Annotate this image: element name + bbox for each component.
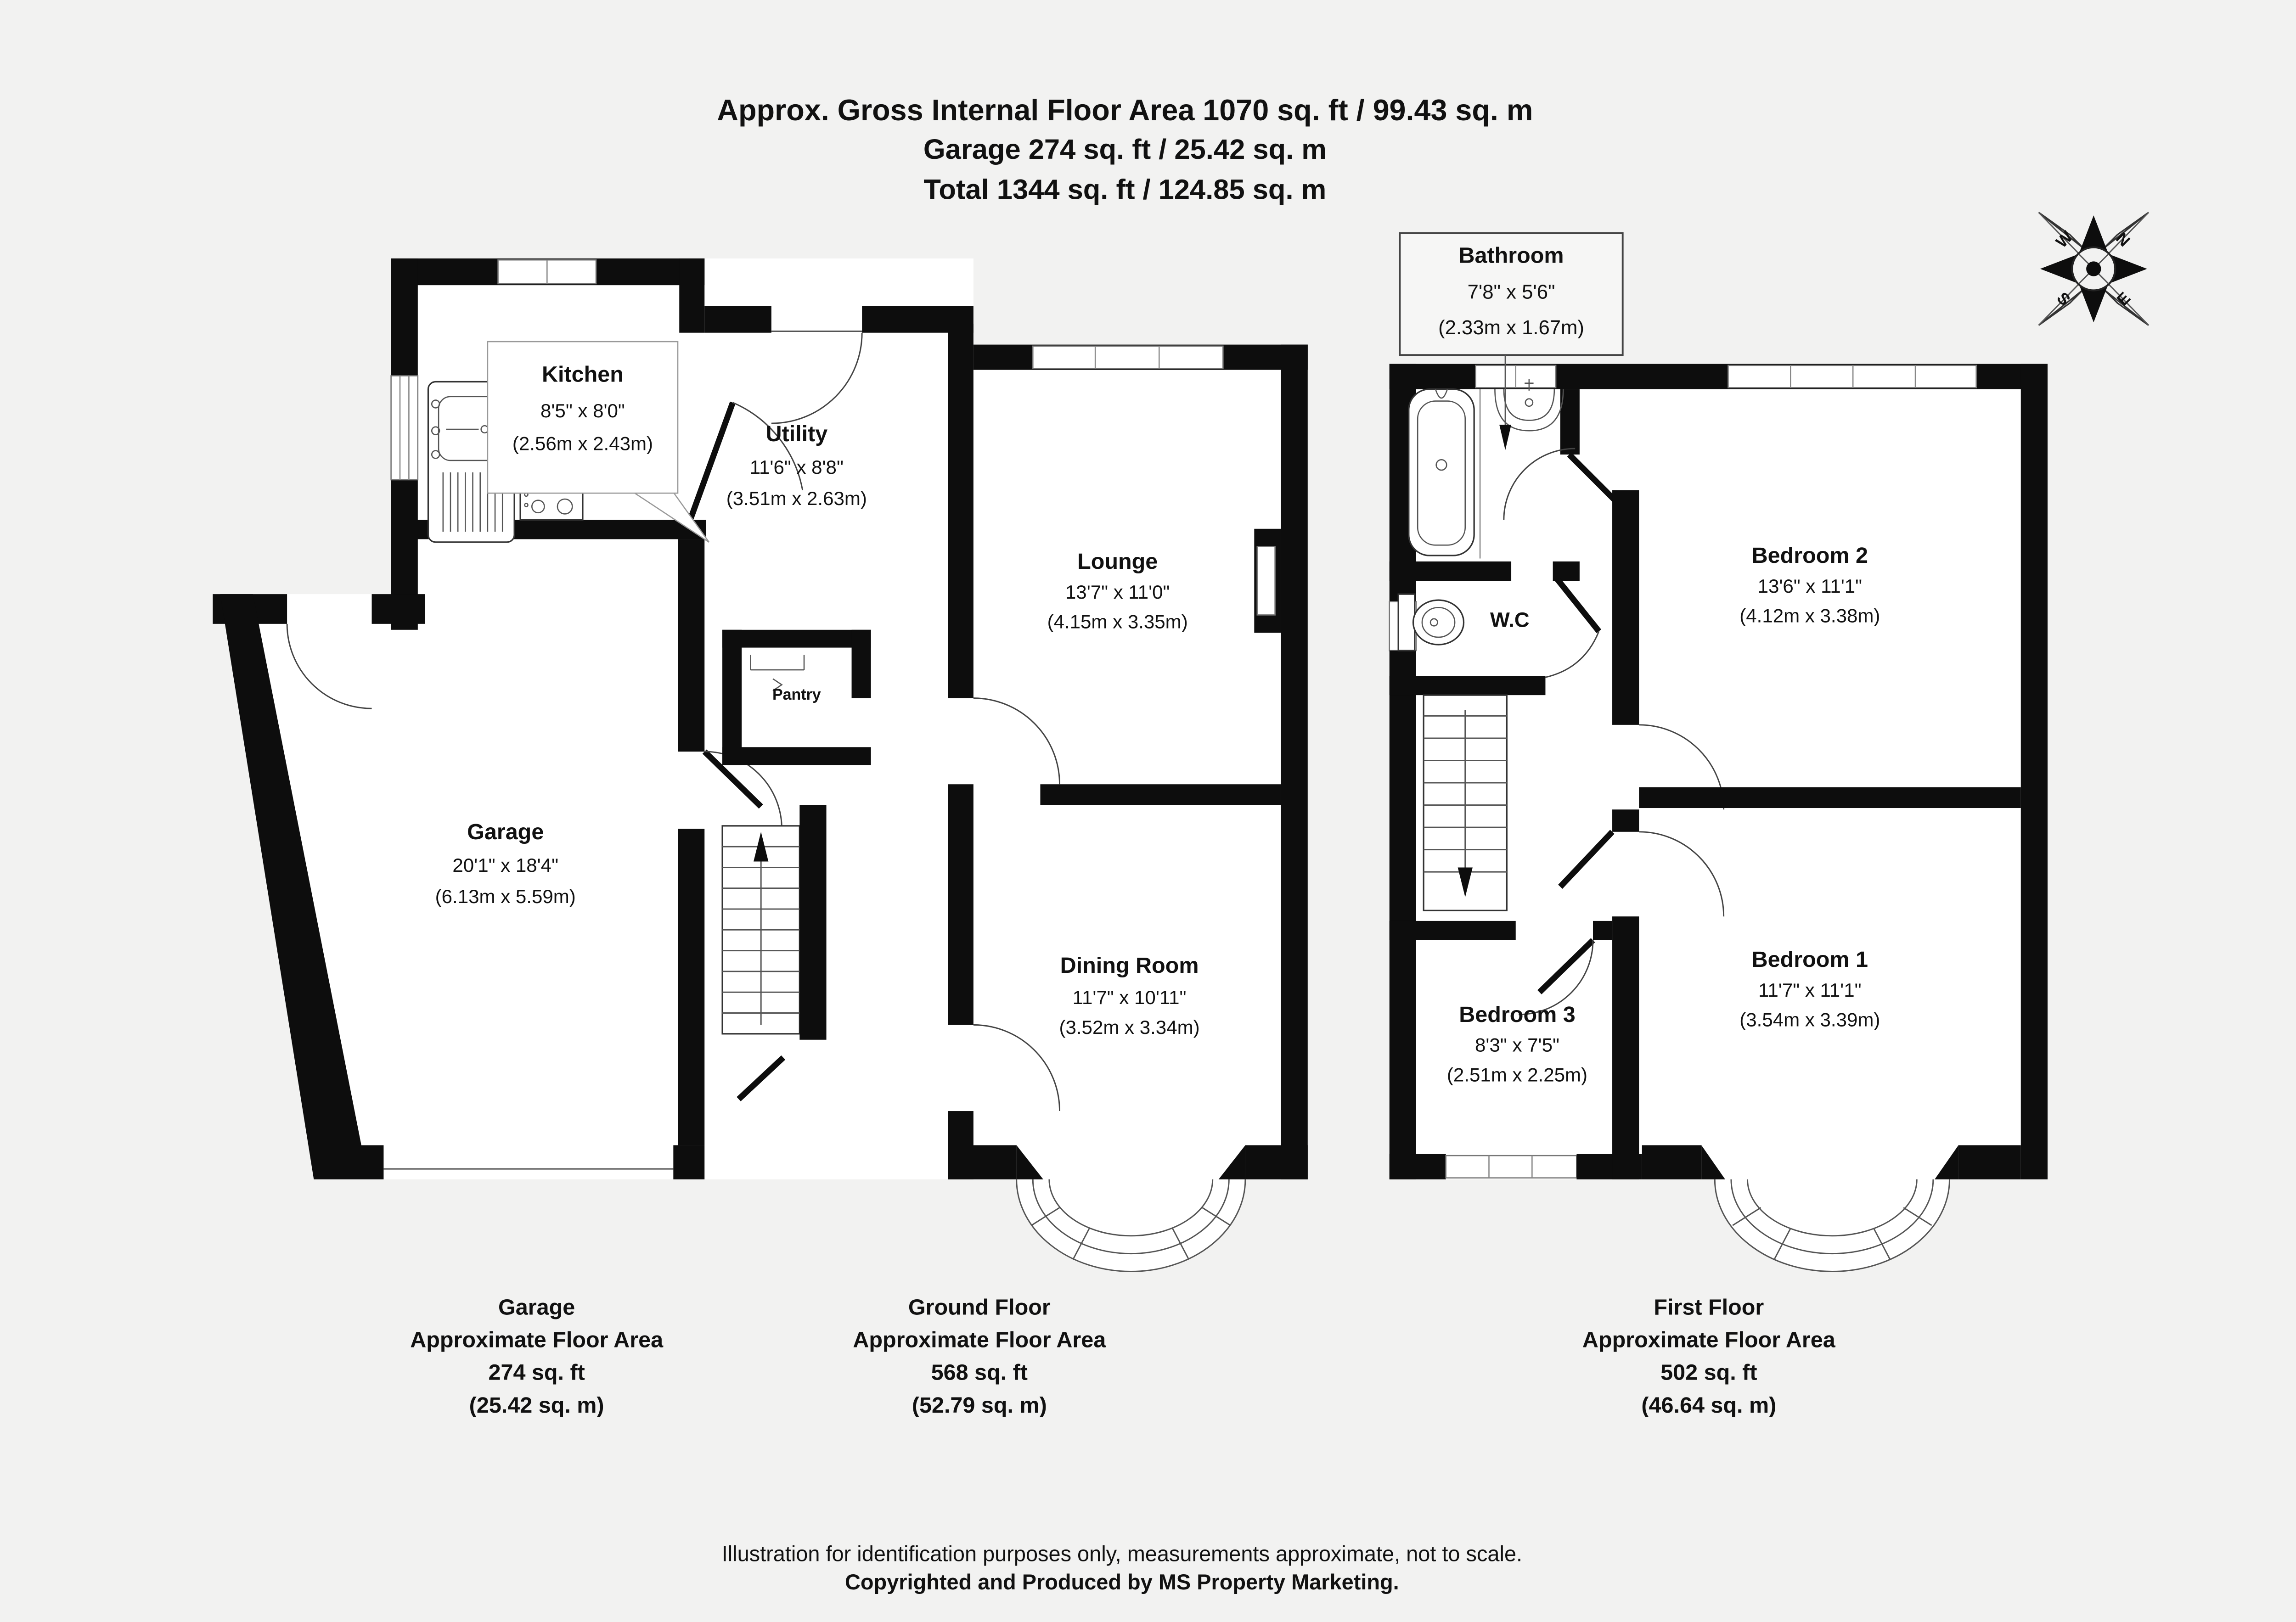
- footer-first-floor: First Floor Approximate Floor Area 502 s…: [1582, 1295, 1836, 1418]
- footer-first-line4: (46.64 sq. m): [1641, 1393, 1776, 1418]
- header-line3: Total 1344 sq. ft / 124.85 sq. m: [923, 174, 1326, 206]
- utility-name: Utility: [765, 421, 827, 446]
- kitchen-imperial: 8'5" x 8'0": [540, 400, 625, 421]
- footer-ground-line2: Approximate Floor Area: [853, 1327, 1106, 1352]
- bathroom-imperial: 7'8" x 5'6": [1468, 281, 1555, 303]
- dining-metric: (3.52m x 3.34m): [1059, 1016, 1199, 1038]
- bedroom1-label: Bedroom 1 11'7" x 11'1" (3.54m x 3.39m): [1739, 947, 1880, 1030]
- lounge-left-wall-upper: [948, 324, 974, 698]
- bedroom3-top-wall-left: [1390, 921, 1516, 940]
- chimney-recess: [1257, 547, 1275, 615]
- bedroom1-bottom-wall-left: [1642, 1145, 1701, 1179]
- dining-bay-floor: [1017, 1179, 1245, 1272]
- disclaimer-line1: Illustration for identification purposes…: [722, 1542, 1522, 1566]
- hall-left-wall-lower: [678, 829, 704, 1145]
- footer-garage-line4: (25.42 sq. m): [469, 1393, 604, 1418]
- bathroom-wc-wall: [1390, 561, 1511, 581]
- centre-wall-lower: [1612, 916, 1639, 1179]
- bedroom3-imperial: 8'3" x 7'5": [1475, 1034, 1559, 1056]
- garage-top-wall-right: [372, 594, 425, 624]
- utility-metric: (3.51m x 2.63m): [726, 488, 867, 509]
- lounge-name: Lounge: [1077, 549, 1158, 574]
- footer-ground-title: Ground Floor: [908, 1295, 1051, 1319]
- footer-first-line2: Approximate Floor Area: [1582, 1327, 1836, 1352]
- hall-left-wall-upper: [678, 539, 704, 752]
- header-line1: Approx. Gross Internal Floor Area 1070 s…: [717, 93, 1533, 127]
- right-exterior-wall: [1281, 345, 1308, 1179]
- bedroom1-metric: (3.54m x 3.39m): [1739, 1009, 1880, 1031]
- ground-stairs: [722, 826, 799, 1034]
- first-floor-stairs: [1424, 695, 1507, 910]
- lounge-left-wall-lower: [948, 784, 974, 805]
- ff-left-wall-lower: [1390, 651, 1416, 1179]
- bedroom2-imperial: 13'6" x 11'1": [1758, 575, 1862, 597]
- kitchen-metric: (2.56m x 2.43m): [512, 432, 653, 454]
- disclaimer: Illustration for identification purposes…: [722, 1542, 1522, 1594]
- porch-step-wall: [679, 258, 704, 333]
- kitchen-name: Kitchen: [542, 362, 624, 387]
- footer-first-line3: 502 sq. ft: [1660, 1360, 1757, 1385]
- bathtub: [1409, 389, 1474, 556]
- lounge-window: [1033, 346, 1223, 369]
- dining-name: Dining Room: [1060, 953, 1199, 978]
- header-line2: Garage 274 sq. ft / 25.42 sq. m: [923, 134, 1327, 165]
- garage-bottom-pillar: [673, 1145, 704, 1179]
- bedroom3-metric: (2.51m x 2.25m): [1447, 1064, 1587, 1085]
- compass-center-dot: [2086, 261, 2101, 276]
- compass-icon: N W S E: [2039, 213, 2149, 326]
- centre-wall-upper: [1612, 490, 1639, 725]
- wc-bottom-wall: [1390, 676, 1546, 695]
- dining-bottom-wall-left: [948, 1145, 1017, 1179]
- floorplan-drawing: Approx. Gross Internal Floor Area 1070 s…: [0, 0, 2296, 1622]
- porch-left-wall: [704, 306, 771, 332]
- wc-name: W.C: [1490, 608, 1530, 631]
- floorplan-page: Approx. Gross Internal Floor Area 1070 s…: [0, 0, 2296, 1622]
- kitchen-left-window: [391, 376, 418, 480]
- bedroom3-bottom-wall-left: [1390, 1154, 1446, 1179]
- header: Approx. Gross Internal Floor Area 1070 s…: [717, 93, 1533, 205]
- bathroom-metric: (2.33m x 1.67m): [1438, 316, 1584, 339]
- garage-metric: (6.13m x 5.59m): [435, 886, 576, 907]
- footer-garage: Garage Approximate Floor Area 274 sq. ft…: [410, 1295, 664, 1418]
- lounge-dining-wall: [1040, 784, 1281, 805]
- centre-wall-mid: [1612, 809, 1639, 832]
- bedroom1-imperial: 11'7" x 11'1": [1758, 979, 1861, 1001]
- bedroom3-window: [1446, 1156, 1577, 1178]
- lounge-imperial: 13'7" x 11'0": [1065, 581, 1170, 603]
- ground-floor-plan: Kitchen 8'5" x 8'0" (2.56m x 2.43m) Util…: [213, 258, 1307, 1272]
- dining-label: Dining Room 11'7" x 10'11" (3.52m x 3.34…: [1059, 953, 1199, 1038]
- garage-imperial: 20'1" x 18'4": [452, 854, 558, 876]
- dining-bottom-wall-right: [1245, 1145, 1308, 1179]
- bathroom-wc-wall2: [1553, 561, 1580, 581]
- bedroom1-bottom-wall-right: [1958, 1145, 2021, 1179]
- dining-left-wall-upper: [948, 805, 974, 1025]
- stairs-right-wall: [799, 805, 826, 1040]
- bathroom-name: Bathroom: [1458, 243, 1564, 268]
- utility-imperial: 11'6" x 8'8": [750, 456, 844, 478]
- garage-name: Garage: [467, 819, 544, 844]
- dining-imperial: 11'7" x 10'11": [1073, 987, 1187, 1008]
- ff-right-wall: [2021, 364, 2048, 1179]
- footer-garage-line3: 274 sq. ft: [488, 1360, 585, 1385]
- footer-garage-line2: Approximate Floor Area: [410, 1327, 664, 1352]
- footer-ground-line4: (52.79 sq. m): [912, 1393, 1047, 1418]
- pantry-name: Pantry: [772, 686, 821, 703]
- bedroom1-name: Bedroom 1: [1752, 947, 1868, 972]
- lounge-metric: (4.15m x 3.35m): [1047, 611, 1188, 633]
- footer-ground-floor: Ground Floor Approximate Floor Area 568 …: [853, 1295, 1106, 1418]
- bedroom3-name: Bedroom 3: [1459, 1002, 1575, 1027]
- disclaimer-line2: Copyrighted and Produced by MS Property …: [845, 1570, 1399, 1594]
- lounge-dining-floor: [974, 345, 1308, 1179]
- footer-garage-title: Garage: [498, 1295, 575, 1319]
- bedroom2-label: Bedroom 2 13'6" x 11'1" (4.12m x 3.38m): [1739, 543, 1880, 626]
- bedroom2-metric: (4.12m x 3.38m): [1739, 605, 1880, 627]
- first-floor-plan: Bathroom 7'8" x 5'6" (2.33m x 1.67m) W.C…: [1390, 233, 2048, 1272]
- bedroom2-name: Bedroom 2: [1752, 543, 1868, 568]
- footer-first-title: First Floor: [1654, 1295, 1764, 1319]
- bedroom2-window: [1728, 365, 1976, 388]
- bedroom-divider-wall: [1639, 787, 2020, 808]
- bedroom3-top-wall-right: [1593, 921, 1612, 940]
- footer-ground-line3: 568 sq. ft: [931, 1360, 1028, 1385]
